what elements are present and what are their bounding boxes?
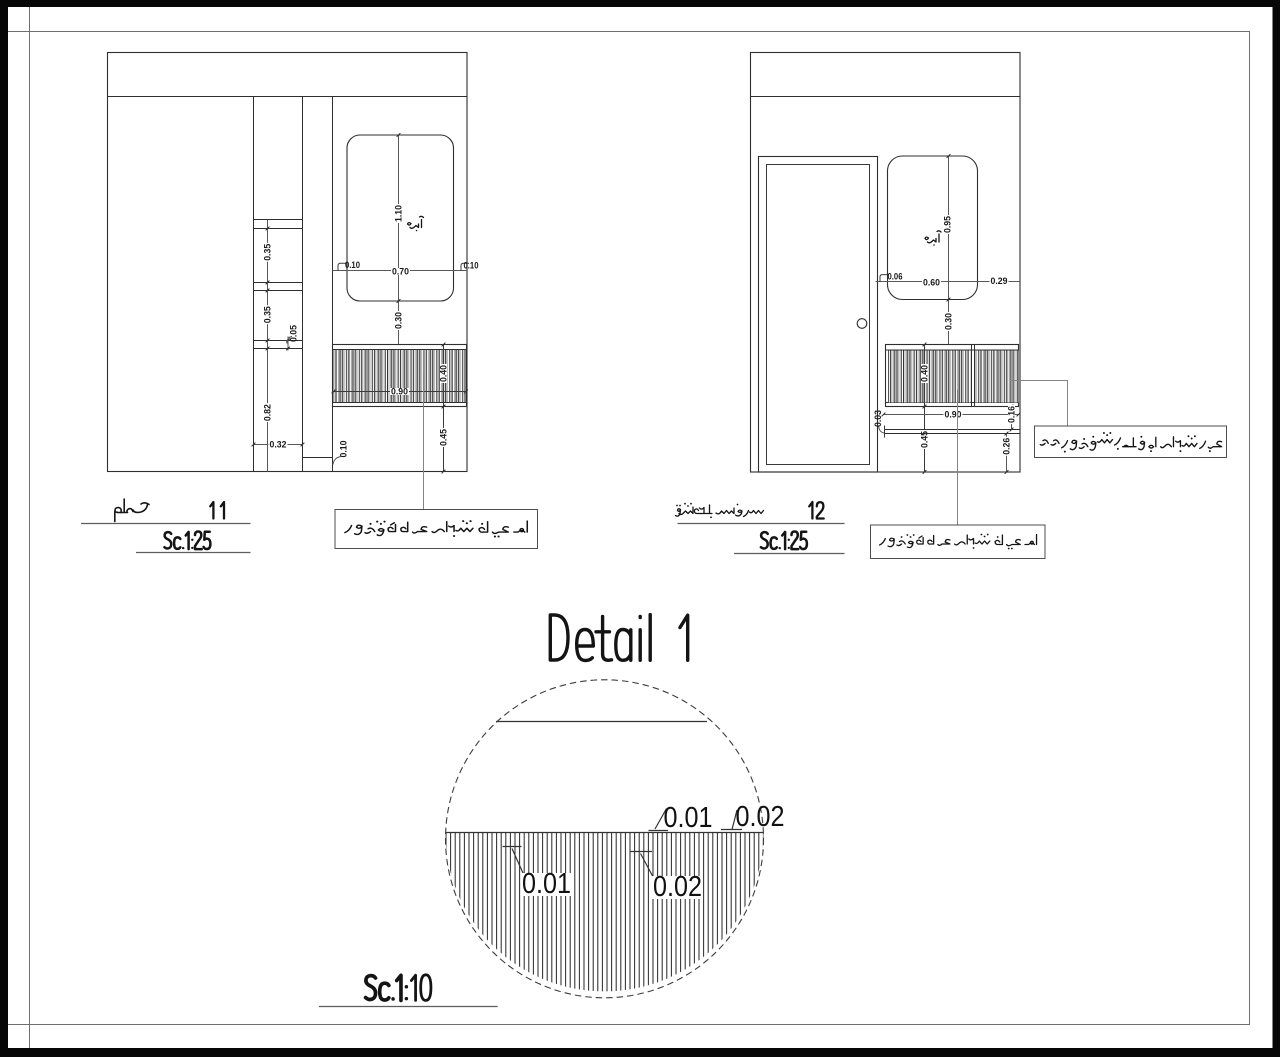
svg-text:0.35: 0.35 xyxy=(263,306,273,323)
svg-text:0.10: 0.10 xyxy=(339,441,349,458)
svg-text:0.40: 0.40 xyxy=(920,365,930,382)
svg-text:0.03: 0.03 xyxy=(873,410,883,427)
svg-text:0.32: 0.32 xyxy=(270,440,287,450)
svg-text:0.29: 0.29 xyxy=(991,276,1008,286)
svg-text:0.26: 0.26 xyxy=(1002,438,1012,455)
svg-text:0.02: 0.02 xyxy=(653,871,702,903)
svg-text:0.60: 0.60 xyxy=(923,278,940,288)
svg-text:0.06: 0.06 xyxy=(888,272,903,282)
svg-text:0.02: 0.02 xyxy=(736,801,785,833)
svg-text:0.45: 0.45 xyxy=(439,429,449,446)
svg-text:0.16: 0.16 xyxy=(1007,406,1017,423)
svg-text:0.95: 0.95 xyxy=(943,216,953,233)
svg-text:1.10: 1.10 xyxy=(394,205,404,222)
svg-text:0.40: 0.40 xyxy=(439,365,449,382)
svg-text:0.70: 0.70 xyxy=(392,267,409,277)
svg-text:0.10: 0.10 xyxy=(345,260,360,270)
svg-text:0.30: 0.30 xyxy=(394,312,404,329)
svg-text:0.10: 0.10 xyxy=(464,260,479,270)
svg-text:0.01: 0.01 xyxy=(522,868,571,900)
svg-text:0.30: 0.30 xyxy=(944,313,954,330)
svg-text:0.01: 0.01 xyxy=(664,802,713,834)
svg-text:0.35: 0.35 xyxy=(263,244,273,261)
svg-text:0.90: 0.90 xyxy=(945,410,962,420)
svg-text:0.05: 0.05 xyxy=(289,325,299,342)
svg-text:0.82: 0.82 xyxy=(263,404,273,421)
svg-text:0.90: 0.90 xyxy=(391,387,408,397)
